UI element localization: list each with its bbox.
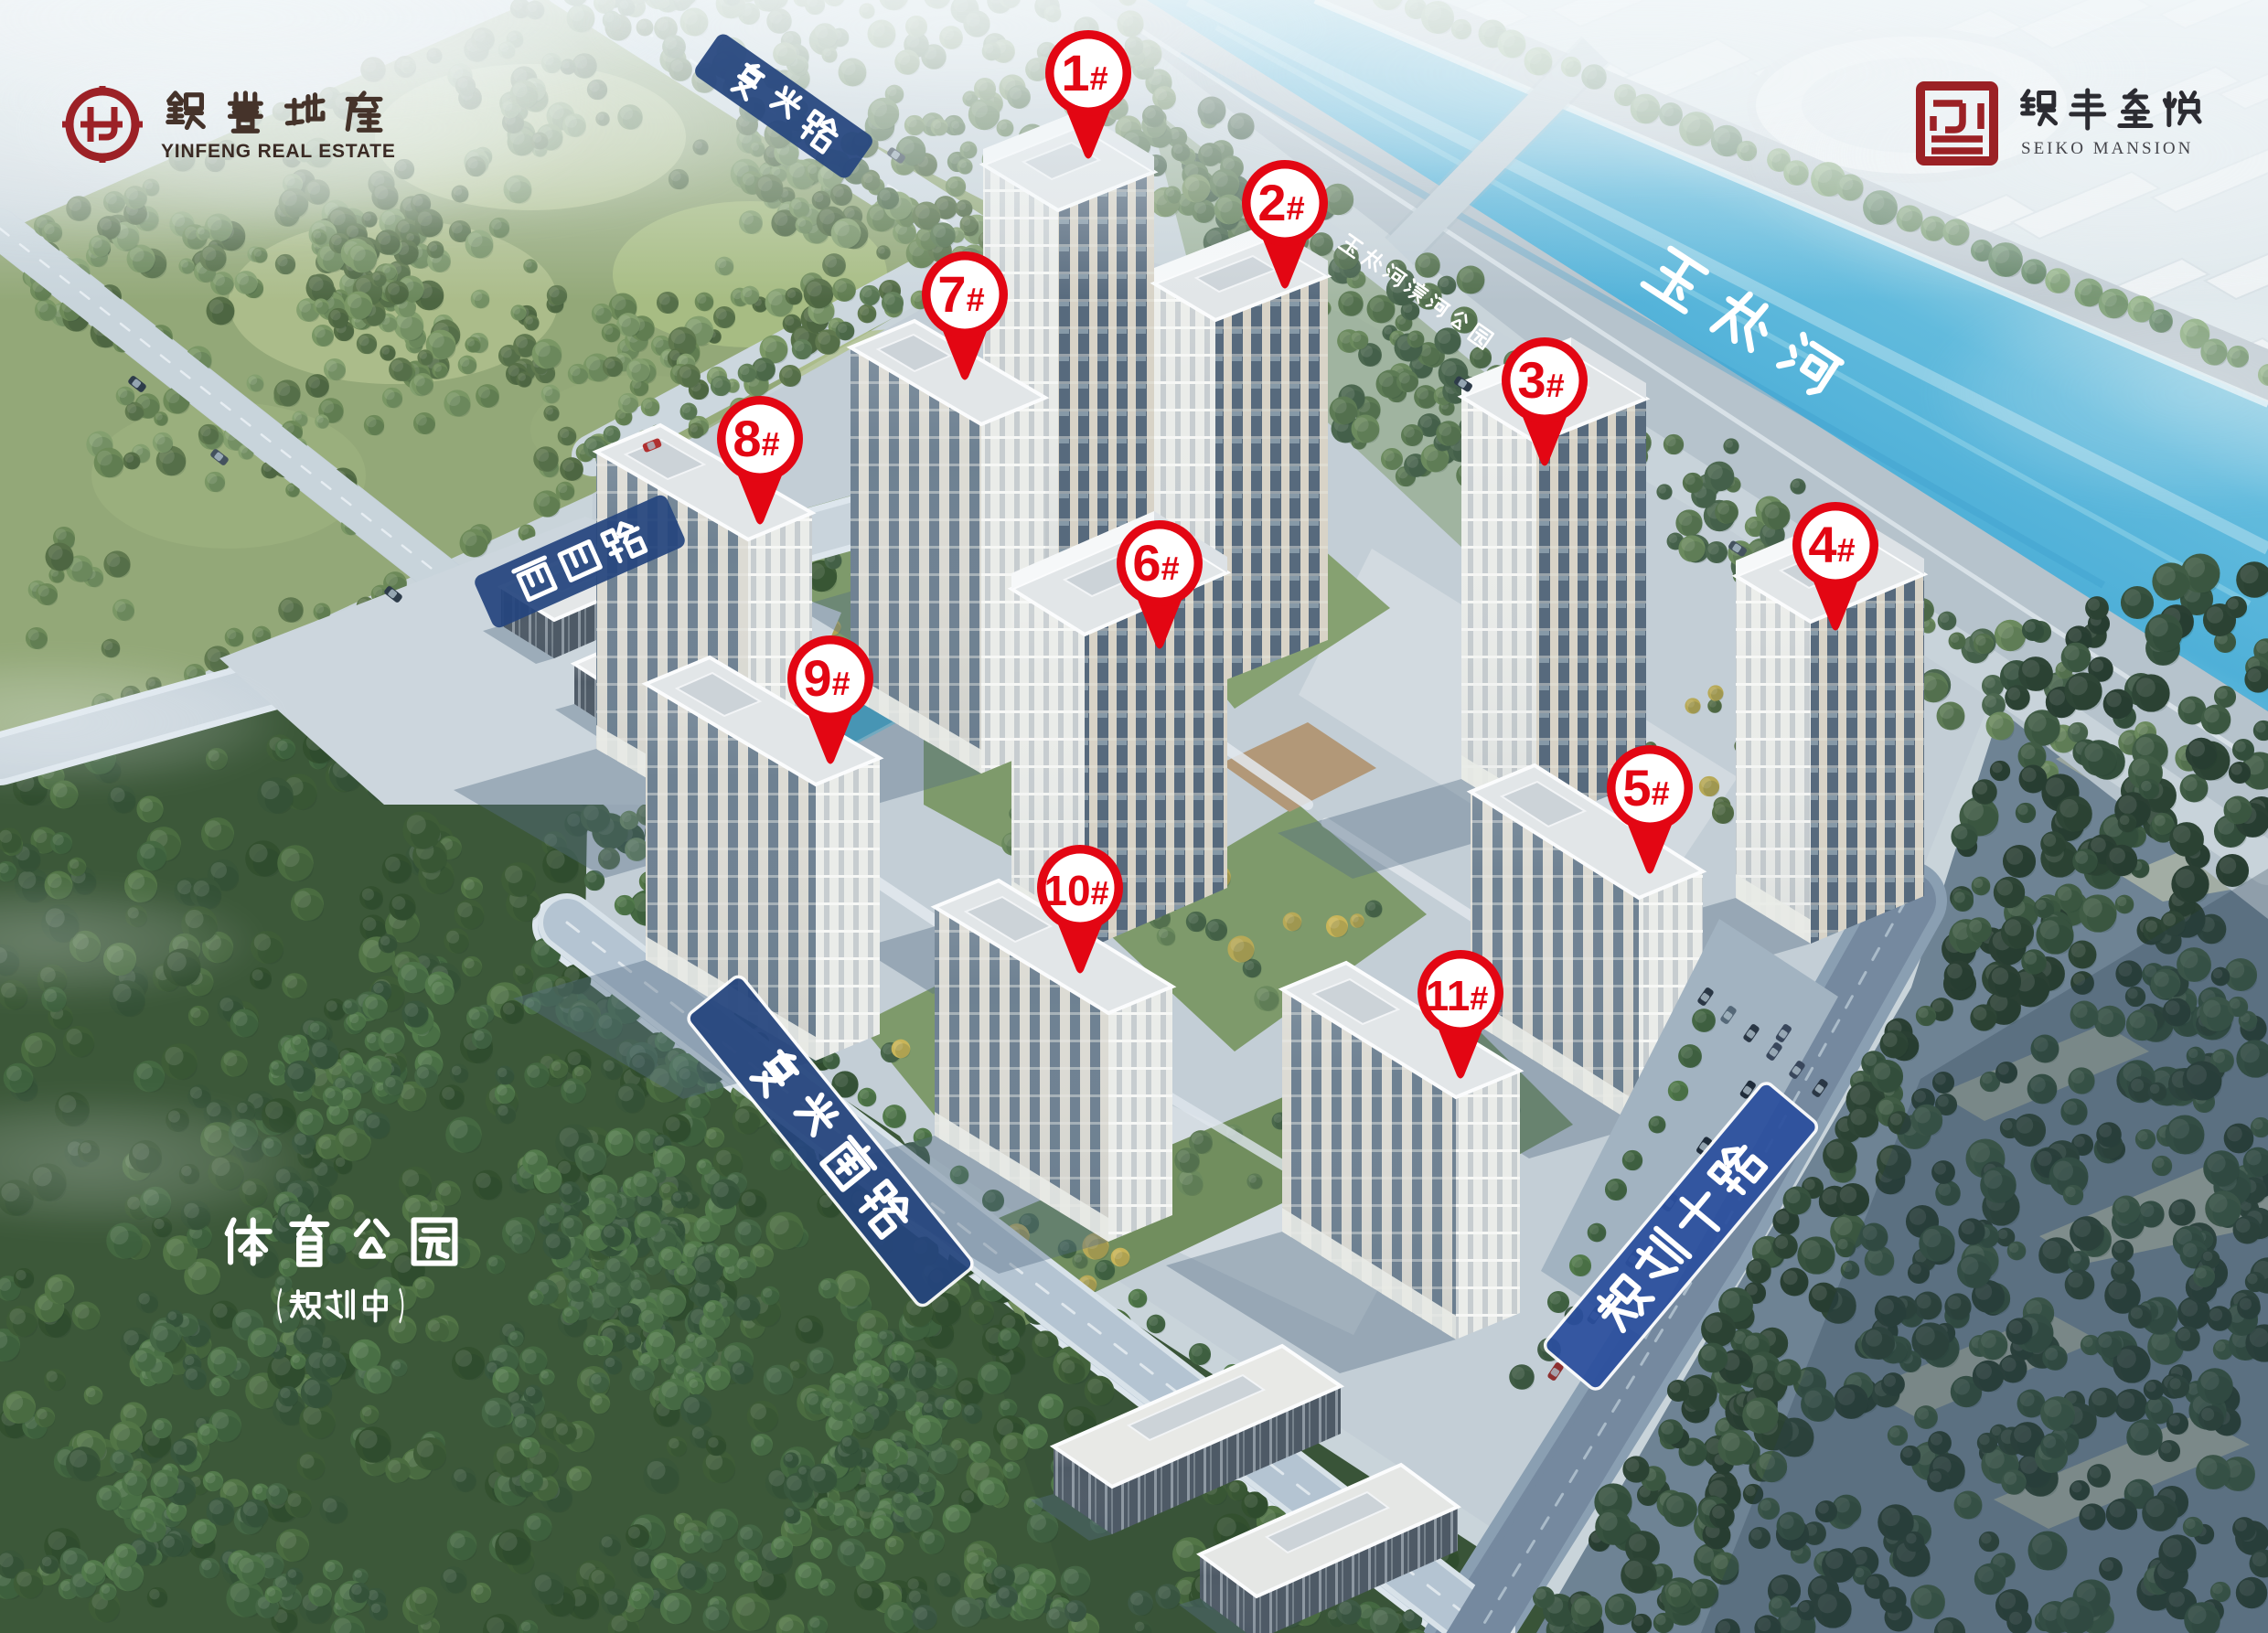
- svg-text:10#: 10#: [1043, 867, 1108, 914]
- svg-text:YINFENG REAL ESTATE: YINFENG REAL ESTATE: [161, 141, 396, 162]
- svg-text:11#: 11#: [1426, 972, 1489, 1019]
- svg-text:SEIKO MANSION: SEIKO MANSION: [2021, 139, 2193, 158]
